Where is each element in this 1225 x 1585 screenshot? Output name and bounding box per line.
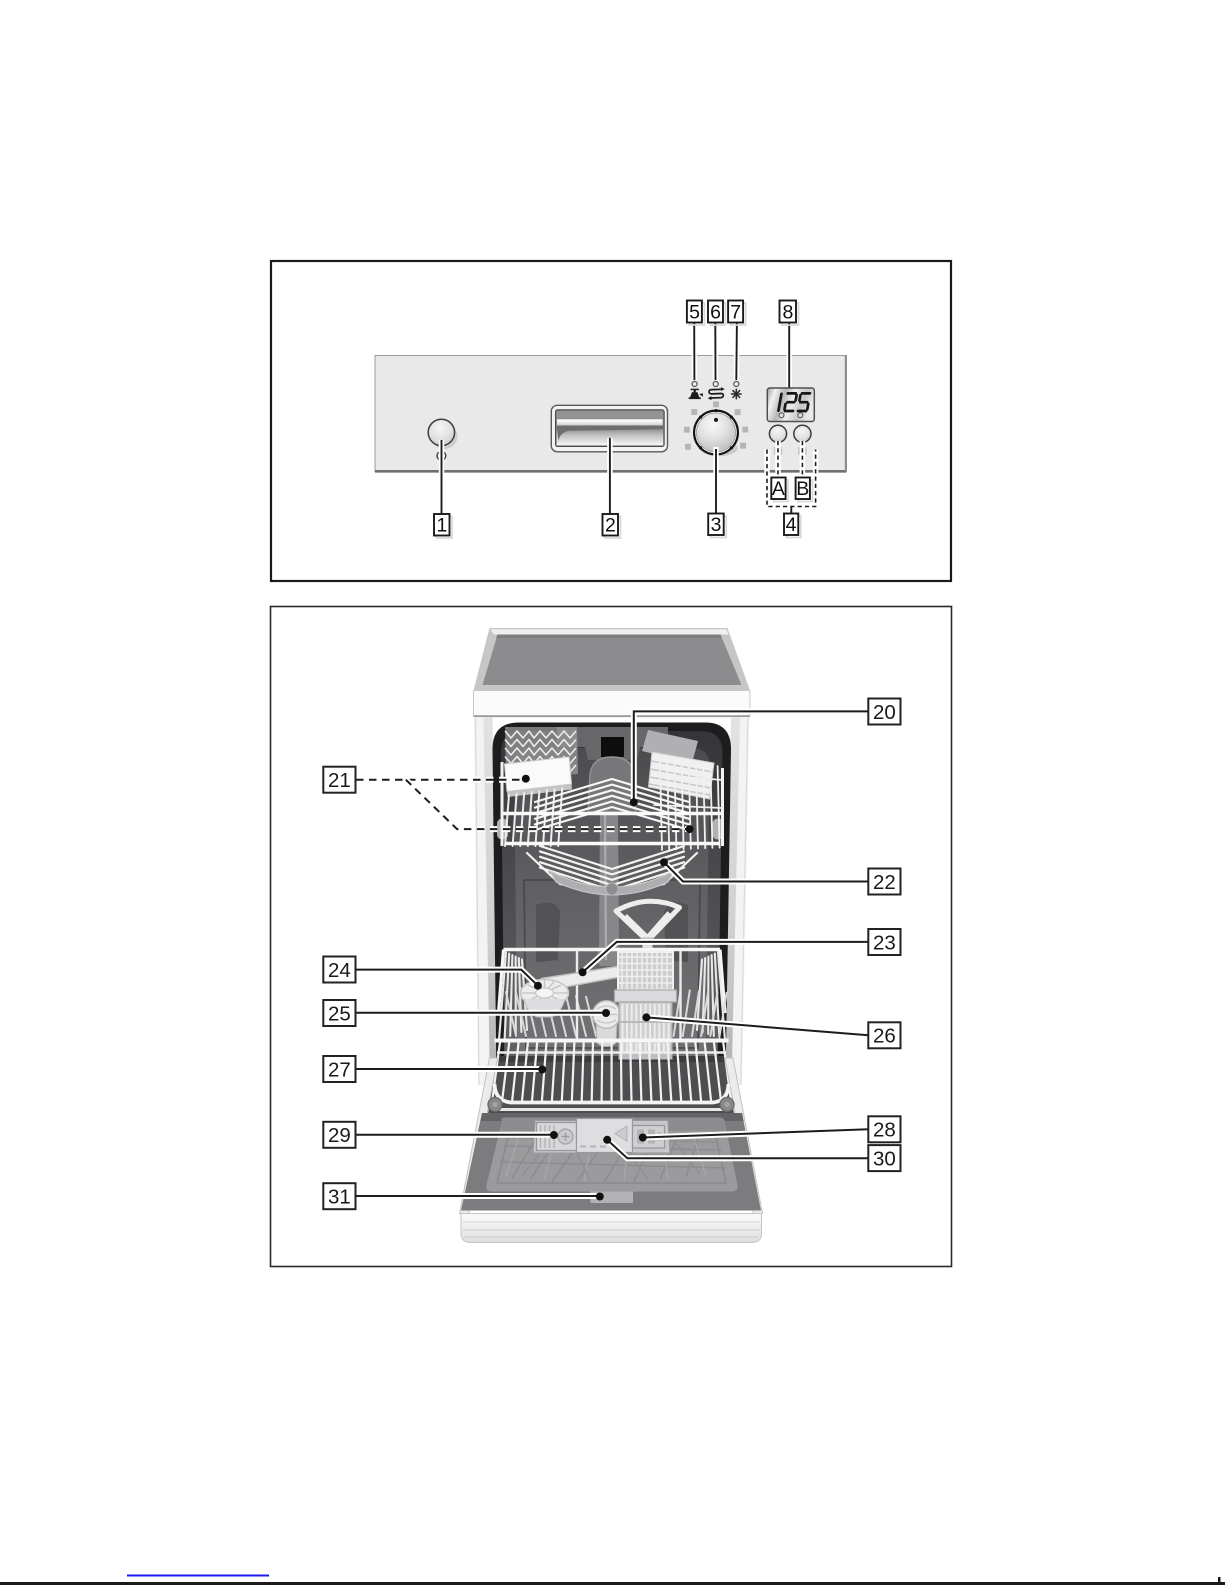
- svg-text:5: 5: [689, 301, 700, 323]
- svg-text:23: 23: [873, 931, 896, 954]
- svg-text:A: A: [772, 478, 785, 500]
- svg-text:21: 21: [328, 769, 351, 792]
- svg-text:29: 29: [328, 1124, 351, 1147]
- svg-text:1: 1: [436, 515, 447, 537]
- svg-text:26: 26: [873, 1025, 896, 1048]
- svg-text:25: 25: [328, 1002, 351, 1025]
- svg-text:B: B: [796, 478, 809, 500]
- svg-text:30: 30: [873, 1147, 896, 1170]
- svg-text:27: 27: [328, 1058, 351, 1081]
- svg-text:31: 31: [328, 1186, 351, 1209]
- svg-text:7: 7: [730, 301, 741, 323]
- svg-text:28: 28: [873, 1119, 896, 1142]
- svg-text:8: 8: [782, 301, 793, 323]
- svg-text:4: 4: [786, 514, 797, 536]
- svg-text:24: 24: [328, 959, 351, 982]
- svg-text:2: 2: [605, 515, 616, 537]
- svg-text:22: 22: [873, 871, 896, 894]
- svg-text:3: 3: [711, 514, 722, 536]
- svg-text:20: 20: [873, 701, 896, 724]
- svg-text:6: 6: [710, 301, 721, 323]
